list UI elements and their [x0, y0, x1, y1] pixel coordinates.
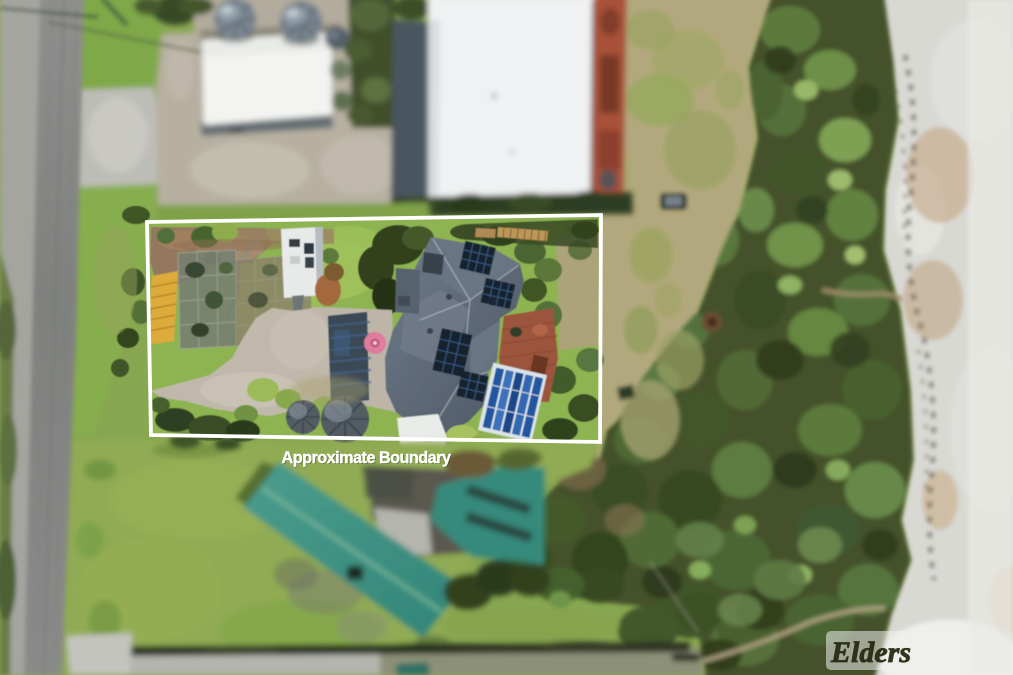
svg-text:Elders: Elders	[830, 636, 911, 669]
svg-text:Approximate Boundary: Approximate Boundary	[282, 449, 451, 467]
